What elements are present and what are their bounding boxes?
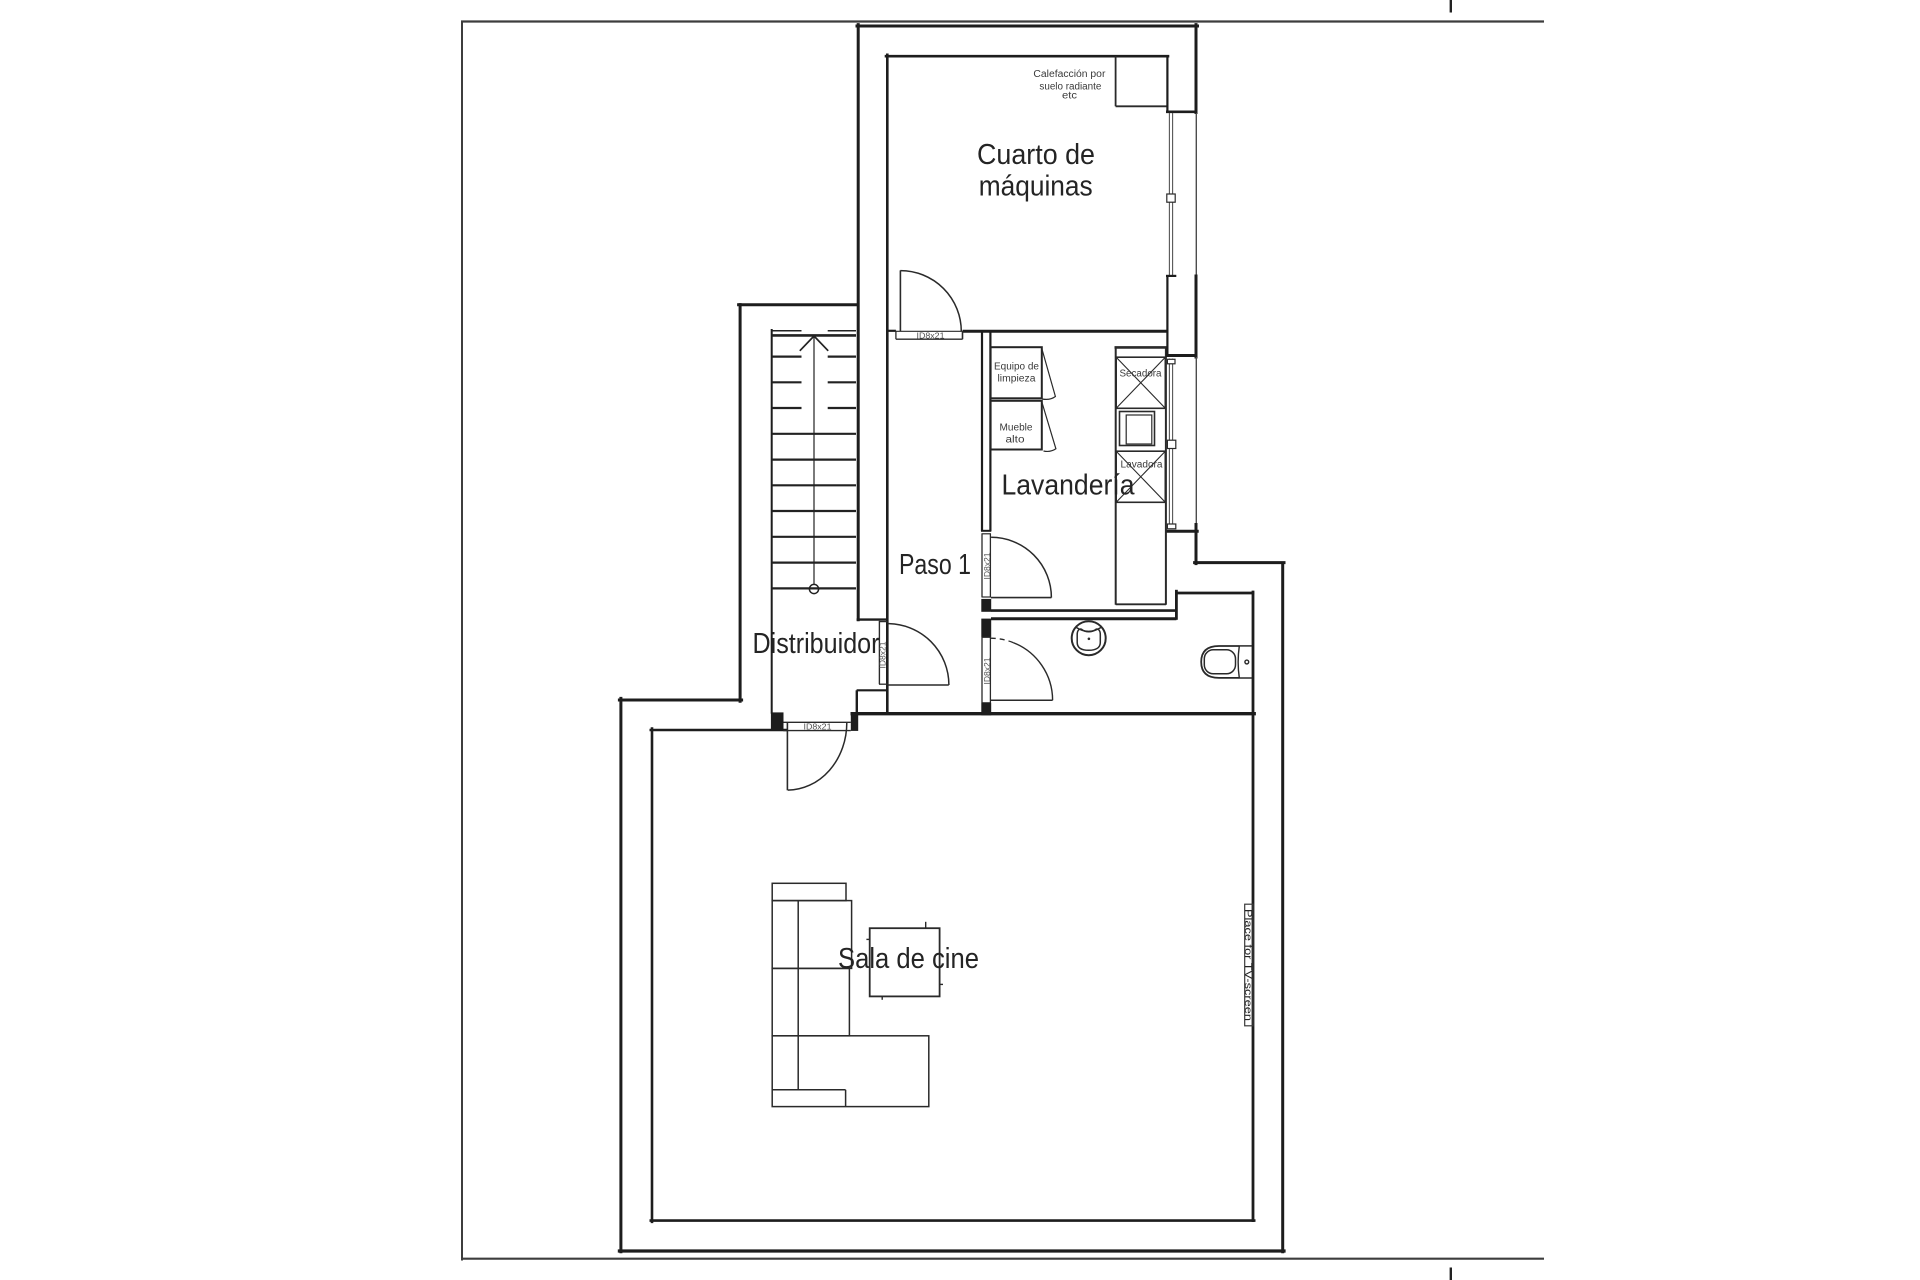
svg-text:ID8x21: ID8x21: [982, 657, 992, 684]
svg-text:Sala de cine: Sala de cine: [838, 943, 979, 975]
svg-text:máquinas: máquinas: [979, 170, 1093, 202]
svg-text:Place for TV-screen: Place for TV-screen: [1242, 909, 1253, 1021]
svg-text:Mueble: Mueble: [1000, 423, 1033, 434]
svg-text:etc: etc: [1062, 91, 1077, 102]
svg-text:ID8x21: ID8x21: [917, 331, 945, 341]
svg-text:Equipo de: Equipo de: [994, 362, 1039, 373]
svg-text:Calefacción por: Calefacción por: [1033, 69, 1106, 80]
svg-text:limpieza: limpieza: [998, 374, 1036, 385]
svg-text:ID8x21: ID8x21: [804, 722, 832, 732]
svg-text:Lavandería: Lavandería: [1002, 469, 1136, 501]
svg-text:Cuarto de: Cuarto de: [977, 139, 1095, 171]
svg-text:alto: alto: [1006, 435, 1026, 446]
svg-text:ID8x21: ID8x21: [982, 552, 992, 579]
svg-text:Distribuidor: Distribuidor: [753, 628, 880, 660]
svg-text:Secadora: Secadora: [1120, 369, 1162, 380]
svg-text:Paso 1: Paso 1: [899, 549, 971, 581]
